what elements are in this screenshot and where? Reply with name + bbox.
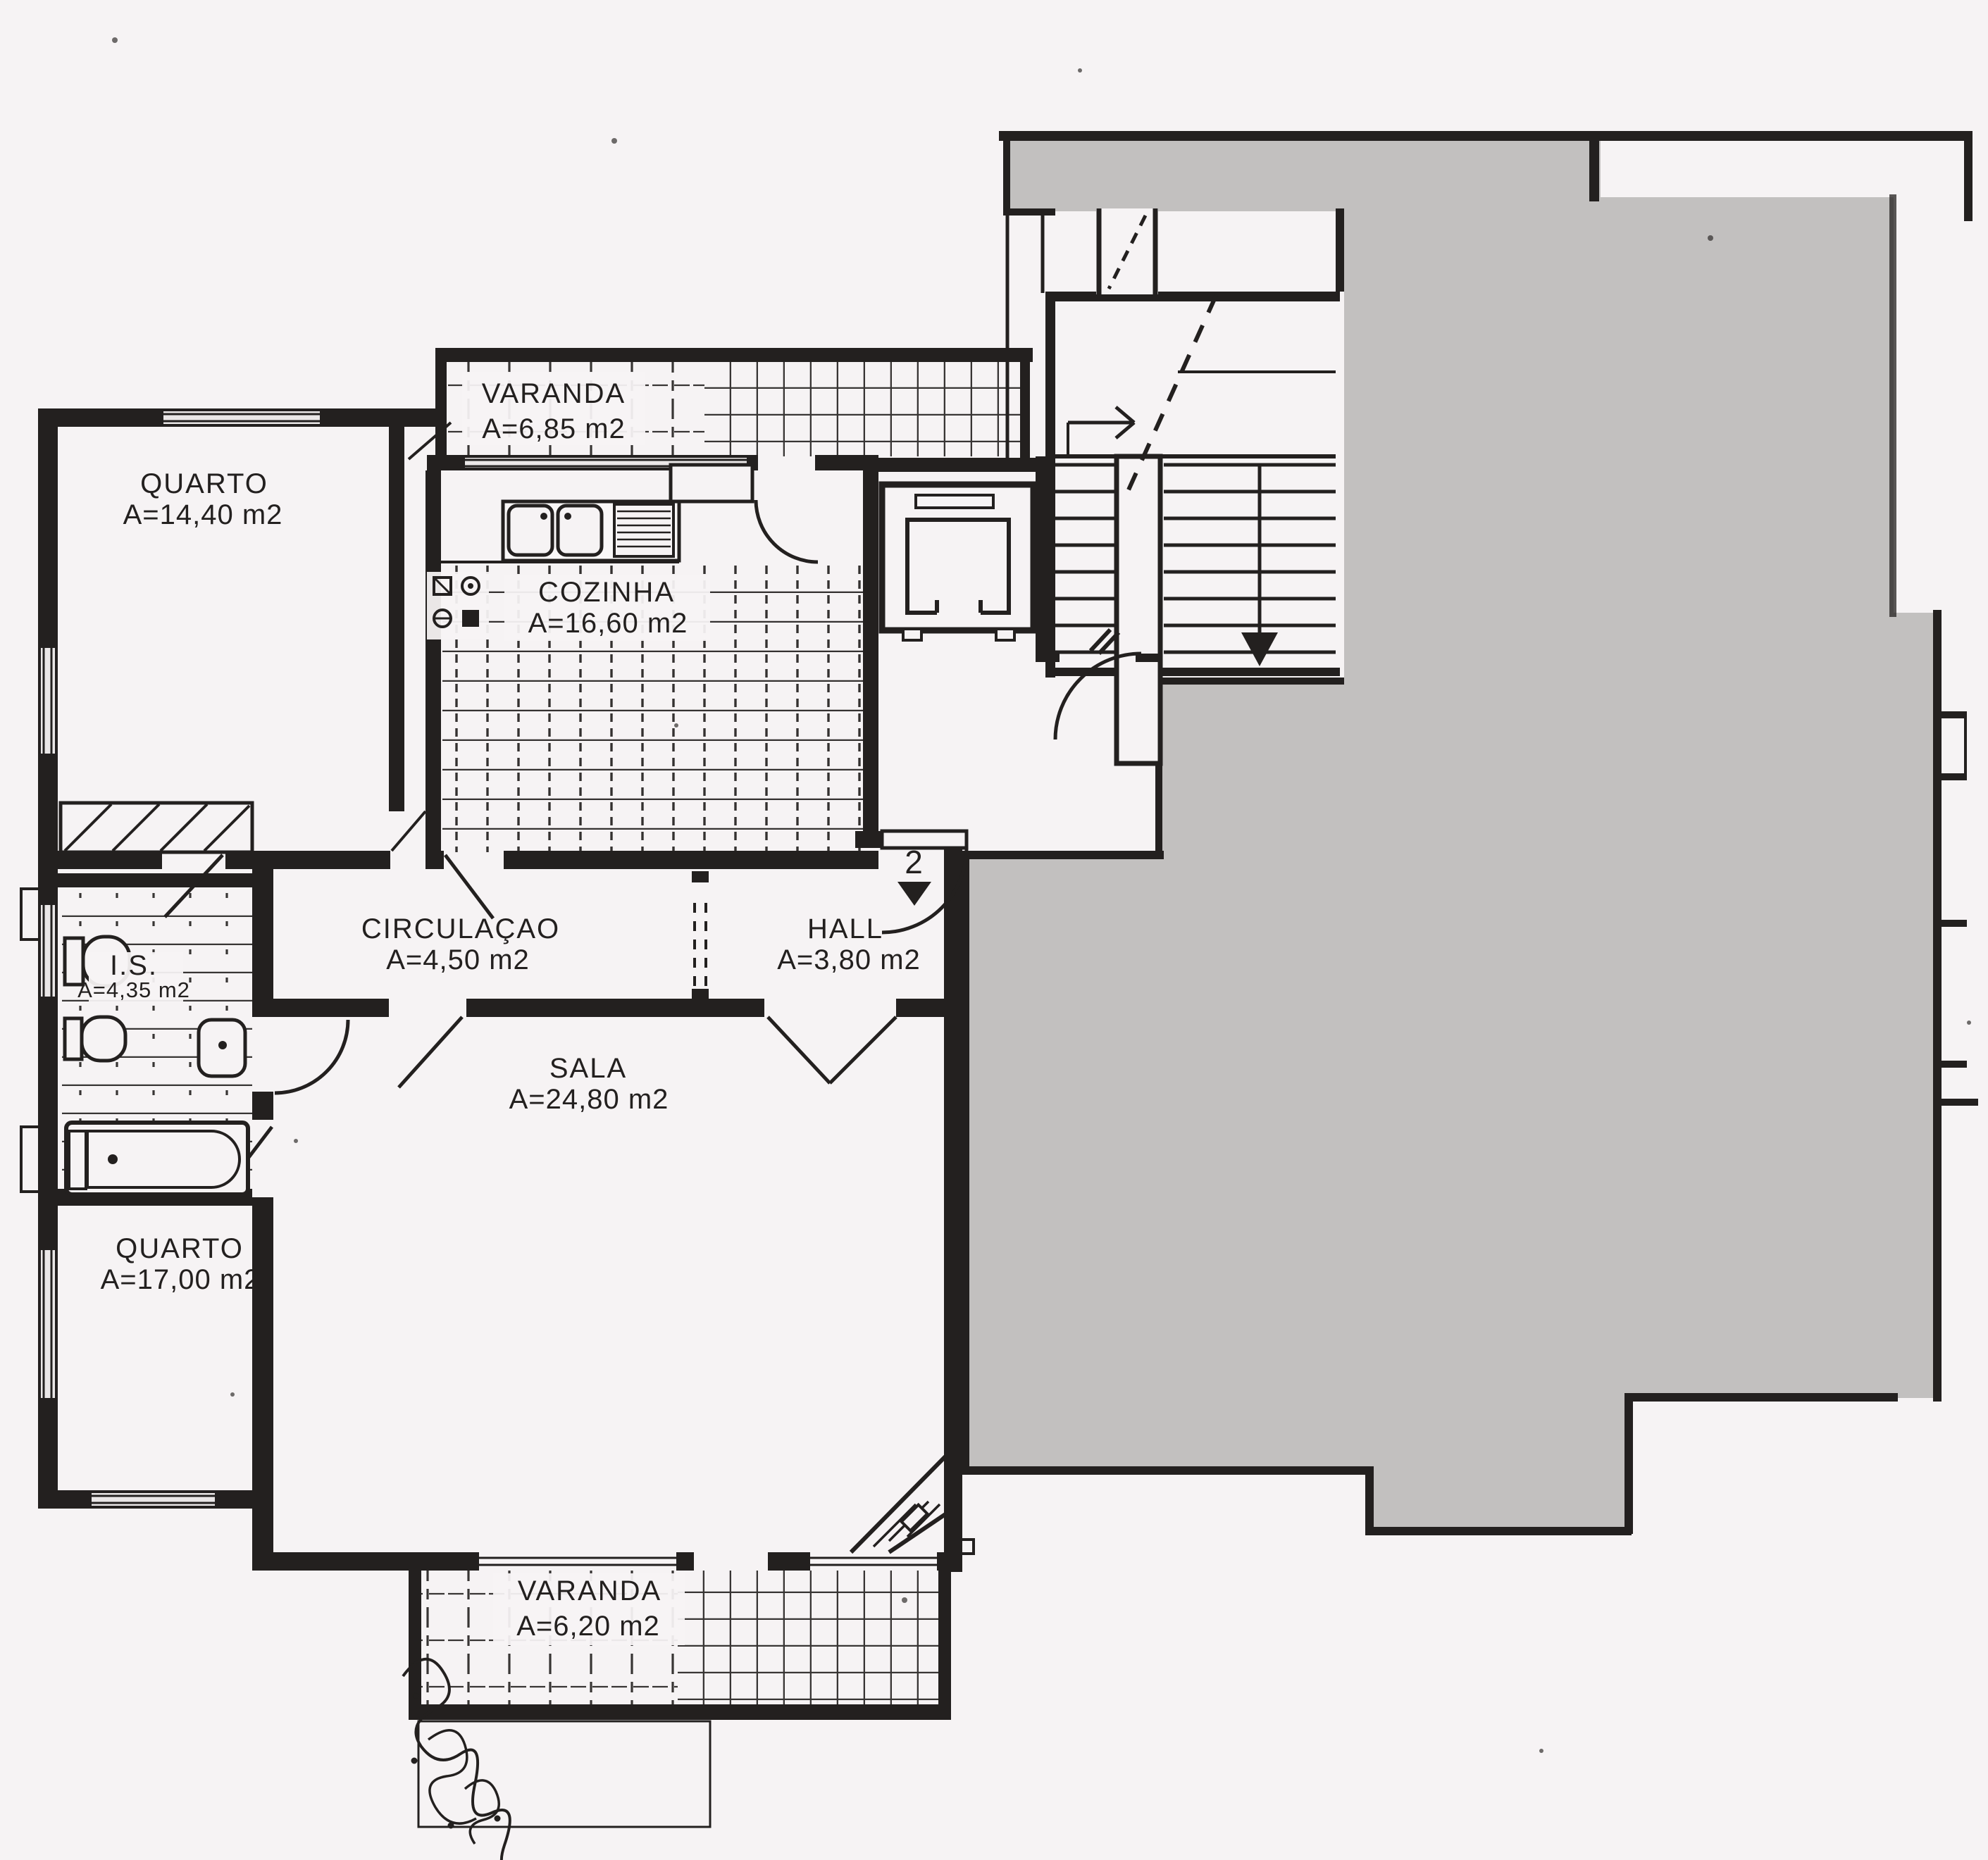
stove-burners-icon [427, 572, 489, 639]
svg-text:I.S.: I.S. [110, 950, 158, 981]
room-label-varanda-bottom: VARANDA A=6,20 m2 [493, 1573, 685, 1645]
kitchen-appliance [671, 465, 752, 501]
room-label-quarto-2: QUARTO A=17,00 m2 [101, 1233, 261, 1295]
svg-text:COZINHA: COZINHA [538, 577, 675, 608]
elevator [882, 485, 1033, 640]
room-area: A=6,85 m2 [482, 413, 626, 444]
stair-newel [1117, 456, 1160, 763]
svg-text:A=24,80 m2: A=24,80 m2 [509, 1084, 669, 1115]
kitchen-balcony-door-arc [756, 500, 818, 562]
svg-text:A=17,00 m2: A=17,00 m2 [101, 1264, 261, 1295]
svg-text:HALL: HALL [807, 913, 883, 944]
floor-plan-drawing: 2 VARANDA A=6,85 m2 QUARTO A=14,40 m2 CO… [0, 0, 1988, 1860]
room-name: VARANDA [482, 378, 626, 409]
room-label-is: I.S. A=4,35 m2 [77, 950, 190, 1002]
wardrobe-hatch [61, 803, 252, 852]
scanned-floor-plan: 2 VARANDA A=6,85 m2 QUARTO A=14,40 m2 CO… [0, 0, 1988, 1860]
sink-left [509, 506, 552, 555]
vent-shaft [1096, 208, 1158, 294]
svg-text:A=16,60 m2: A=16,60 m2 [528, 608, 688, 639]
drainer-hatch [614, 504, 673, 556]
balcony-top-tiles-dense [704, 362, 1023, 456]
svg-text:A=3,80 m2: A=3,80 m2 [777, 944, 921, 975]
room-label-varanda-top: VARANDA A=6,85 m2 [462, 372, 645, 445]
balcony-bottom-tiles-dense [678, 1571, 940, 1704]
svg-text:CIRCULAÇAO: CIRCULAÇAO [361, 913, 560, 944]
svg-text:A=4,50 m2: A=4,50 m2 [386, 944, 530, 975]
room-label-sala: SALA A=24,80 m2 [509, 1053, 669, 1115]
room-label-cozinha: COZINHA A=16,60 m2 [504, 575, 710, 641]
svg-text:A=14,40 m2: A=14,40 m2 [123, 499, 283, 530]
svg-text:SALA: SALA [549, 1053, 627, 1084]
room-label-circulacao: CIRCULAÇAO A=4,50 m2 [361, 913, 560, 975]
entrance-arrow-icon [897, 882, 931, 906]
washbasin-fixture [199, 1020, 245, 1076]
bathtub-fixture [66, 1123, 248, 1194]
unit-number: 2 [905, 844, 924, 880]
entrance-marker: 2 [897, 844, 931, 906]
svg-text:QUARTO: QUARTO [116, 1233, 244, 1264]
room-label-hall: HALL A=3,80 m2 [777, 913, 921, 975]
svg-text:QUARTO: QUARTO [140, 468, 268, 499]
entry-door-leaf [882, 831, 967, 848]
sink-right [558, 506, 602, 555]
bidet-fixture [65, 1017, 125, 1061]
svg-text:VARANDA: VARANDA [518, 1575, 661, 1606]
svg-text:A=6,20 m2: A=6,20 m2 [516, 1611, 660, 1642]
bathroom-door-arc [275, 1020, 348, 1093]
room-label-quarto-1: QUARTO A=14,40 m2 [123, 468, 283, 530]
svg-text:A=4,35 m2: A=4,35 m2 [77, 978, 190, 1002]
